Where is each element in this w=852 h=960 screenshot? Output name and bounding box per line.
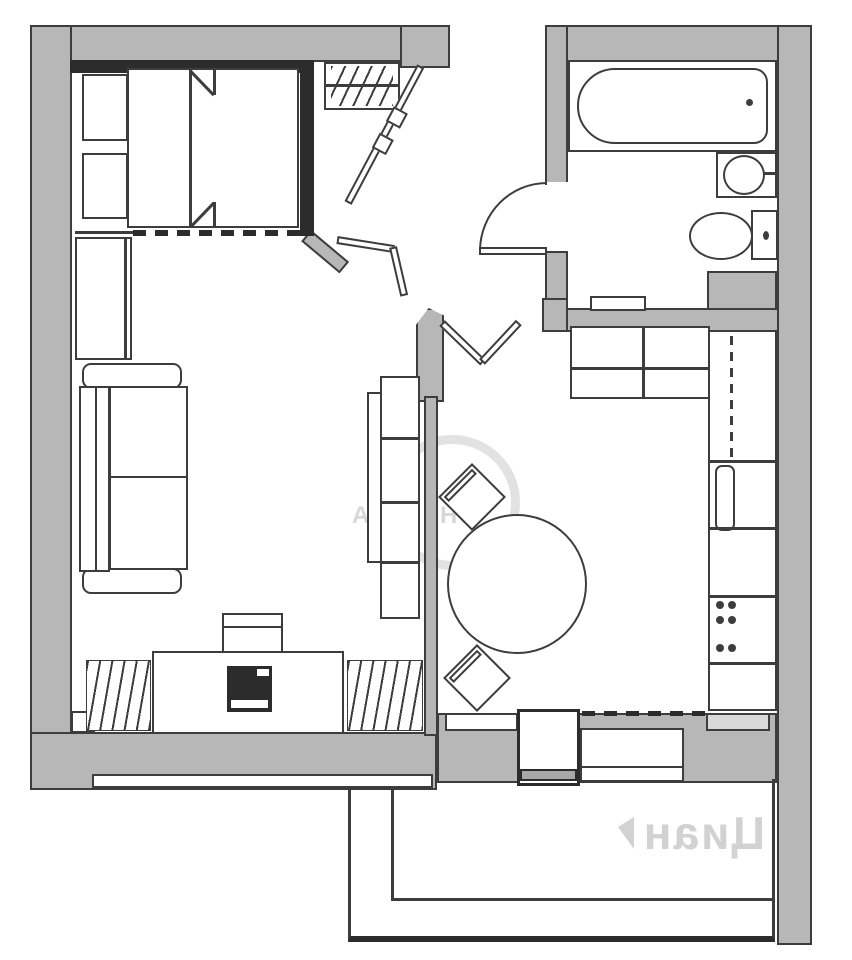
kitchen-door-leaf-b [479, 320, 522, 365]
bathroom-door-swing-arc [479, 182, 547, 251]
sofa-seat-1 [109, 386, 188, 478]
shelving-divider-3 [381, 561, 419, 564]
hall-closet-hangers [331, 66, 393, 106]
nightstand-bottom [82, 153, 128, 219]
bathroom-wall-niche [590, 296, 646, 311]
burner-5 [716, 644, 724, 652]
burner-2 [728, 601, 736, 609]
wall-kitchen-entry-jamb [542, 298, 568, 332]
bedroom-wall-right [300, 60, 314, 236]
washbasin-faucet [763, 172, 777, 175]
kitchen-sill-right [706, 713, 770, 731]
shelving-divider-1 [381, 437, 419, 440]
tv-shelf-line [223, 626, 282, 628]
chair-bottom [443, 644, 511, 712]
kitchen-counter-top-block [570, 326, 710, 399]
wall-bathroom-left-upper [545, 25, 568, 185]
living-wardrobe-edge [124, 238, 127, 359]
shelving-unit [380, 376, 420, 619]
kitchen-counter-top-vline [642, 327, 645, 398]
upper-cabinet-dashed-line [730, 336, 733, 462]
bathtub-drain [746, 99, 753, 106]
bathtub-inner [577, 68, 768, 144]
counter-seg-2 [709, 527, 776, 530]
burner-1 [716, 601, 724, 609]
nightstand-top [82, 74, 128, 141]
dining-table [447, 514, 587, 654]
counter-seg-1 [709, 460, 776, 463]
partition-dashed [133, 230, 303, 236]
burner-3 [716, 616, 724, 624]
kitchen-window-dashed-lintel [582, 711, 706, 716]
kitchen-sill-left [445, 713, 518, 731]
balcony-inner-vline [391, 781, 394, 901]
wall-entry-jamb [400, 25, 450, 68]
duct-shaft [707, 271, 777, 310]
radiator-right [347, 660, 423, 731]
wall-divider [424, 396, 438, 736]
wall-top-right [545, 25, 810, 62]
living-window-strip [92, 774, 433, 788]
floor-plan: АЛ НТ Циан [0, 0, 852, 960]
oven-handle [715, 465, 735, 531]
toilet-button [763, 231, 769, 240]
kitchen-window [580, 728, 684, 782]
bathroom-door-leaf [479, 247, 547, 255]
entry-door-mark-1 [372, 133, 394, 156]
burner-4 [728, 616, 736, 624]
washbasin-bowl [723, 155, 765, 195]
entry-opening [450, 23, 545, 64]
balcony-door-threshold [520, 769, 577, 781]
bathroom-door-opening [547, 182, 568, 251]
kitchen-counter-top-hline [571, 367, 709, 370]
hall-door-leaf-b [389, 246, 408, 297]
burner-6 [728, 644, 736, 652]
tv-detail-2 [231, 700, 268, 708]
radiator-left [86, 660, 151, 731]
balcony-inner-hline [391, 898, 775, 901]
hall-door-leaf-a [336, 236, 395, 253]
chair-bottom-backrest [449, 650, 482, 683]
tv-shelf [222, 613, 283, 654]
shelving-divider-2 [381, 501, 419, 504]
tv-detail-1 [257, 669, 269, 676]
wall-top-left [30, 25, 450, 62]
partition-solid-segment [75, 231, 133, 234]
toilet-bowl [689, 212, 753, 260]
bed-pillow-fold-top-edge [213, 70, 216, 95]
sofa-seat-2 [109, 476, 188, 570]
kitchen-window-sill-line [581, 766, 683, 768]
wall-divider-pillar [416, 308, 444, 402]
sofa-backrest-line [95, 388, 97, 570]
balcony-outline [348, 779, 775, 942]
counter-seg-4 [709, 662, 776, 665]
tv [227, 666, 272, 712]
bed-pillow-fold-bottom-edge [213, 202, 216, 227]
wall-right [777, 25, 812, 945]
counter-seg-3 [709, 595, 776, 598]
bed-headboard-line [189, 68, 192, 228]
wall-left [30, 25, 72, 790]
